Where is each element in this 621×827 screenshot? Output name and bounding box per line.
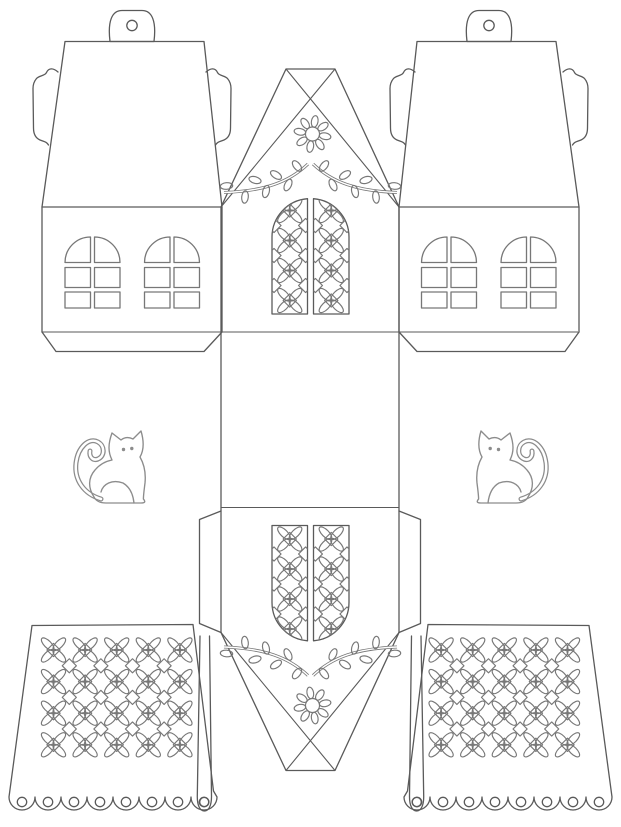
template-drawing	[0, 0, 621, 827]
cat-left	[76, 431, 146, 503]
cat-right	[477, 431, 547, 503]
hanging-strap-right	[409, 636, 423, 811]
gable-bottom-outline	[221, 633, 399, 771]
house-panel-left	[33, 11, 231, 352]
strip-side-edges	[221, 207, 399, 633]
lace-panel-left	[9, 625, 217, 811]
hanging-strap-left	[197, 636, 211, 811]
strip-glue-tab-left	[200, 511, 222, 633]
house-panel-right	[390, 11, 588, 352]
gable-top-outline	[221, 69, 399, 207]
gable-bottom-creases	[221, 633, 399, 771]
gable-face-front	[220, 115, 401, 314]
gable-top-creases	[221, 69, 399, 207]
gable-strip	[197, 69, 423, 811]
strip-glue-tab-right	[399, 511, 421, 633]
papercraft-template-page	[0, 0, 621, 827]
gable-face-back	[220, 525, 401, 724]
lace-panel-right	[404, 625, 612, 811]
